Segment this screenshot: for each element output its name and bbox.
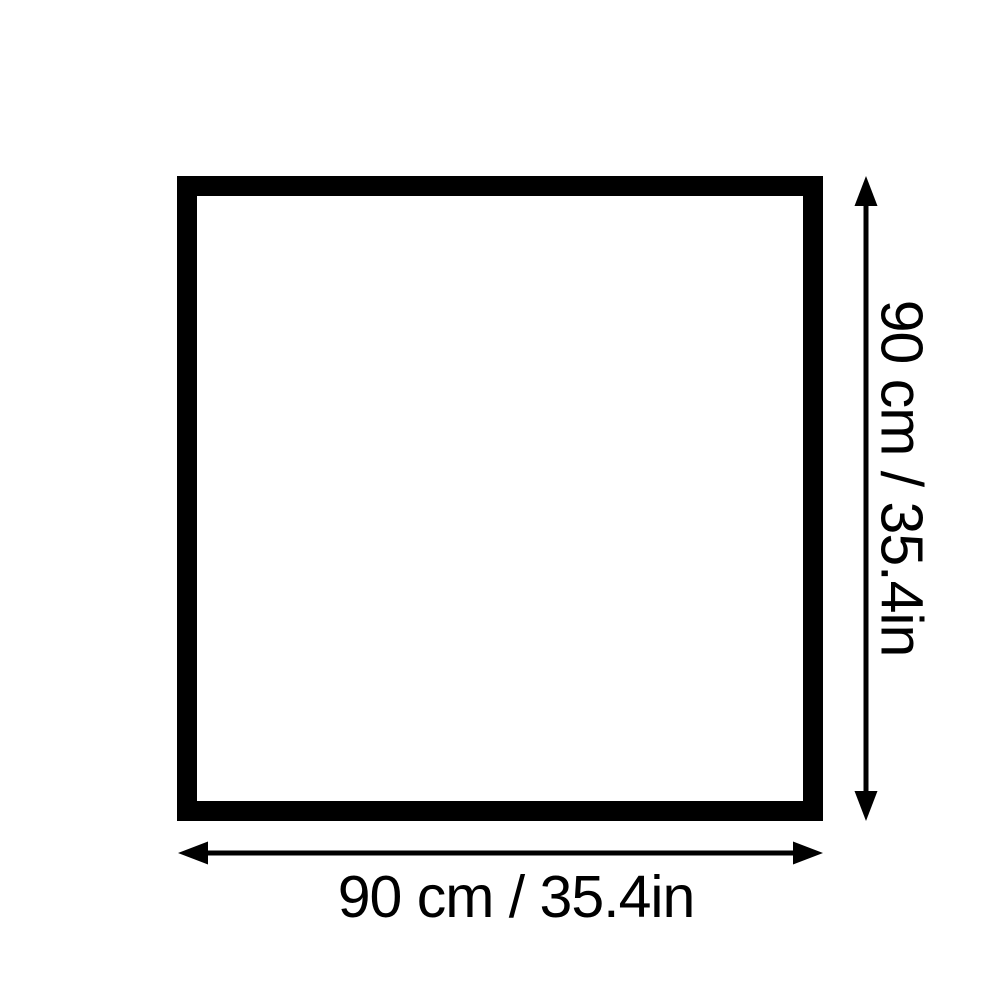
arrowhead-left-icon	[178, 842, 208, 865]
product-outline-box	[177, 176, 823, 821]
arrowhead-right-icon	[793, 842, 823, 865]
height-dimension-label: 90 cm / 35.4in	[872, 300, 931, 657]
width-dimension-label: 90 cm / 35.4in	[338, 868, 695, 927]
dimension-diagram: 90 cm / 35.4in 90 cm / 35.4in	[0, 0, 1000, 1000]
arrowhead-up-icon	[855, 176, 878, 206]
arrowhead-down-icon	[855, 791, 878, 821]
